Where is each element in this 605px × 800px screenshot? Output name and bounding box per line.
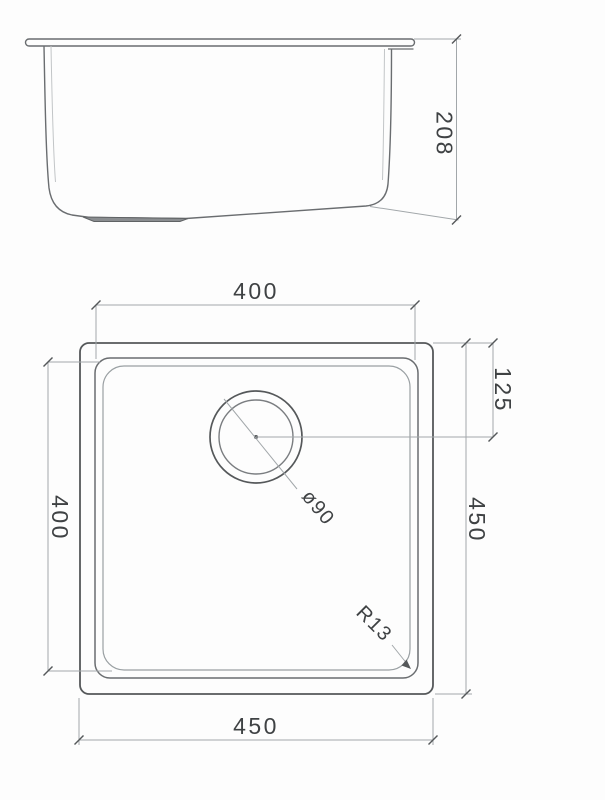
- plan-view: ø90 400 400 450: [44, 278, 517, 745]
- bowl-length-label: 400: [47, 495, 73, 541]
- sink-drawing-canvas: 208 ø90 400: [0, 0, 605, 800]
- drain-diameter-label: ø90: [297, 486, 339, 530]
- bowl-width-label: 400: [233, 278, 279, 304]
- corner-radius-arrowhead: [402, 660, 412, 670]
- corner-radius-label: R13: [352, 602, 397, 647]
- depth-extension-bottom: [370, 207, 459, 221]
- depth-dimension-label: 208: [432, 111, 458, 157]
- side-view-bowl-outline: [44, 46, 392, 219]
- side-view-inner-wall-left: [51, 46, 56, 182]
- overall-length-label: 450: [464, 497, 490, 543]
- drain-diameter-line: [224, 399, 297, 489]
- side-view-rim: [26, 39, 415, 46]
- side-view: 208: [26, 35, 462, 225]
- technical-drawing-sheet: 208 ø90 400: [0, 0, 605, 800]
- side-view-inner-wall-right: [383, 49, 385, 180]
- overall-width-label: 450: [233, 713, 279, 739]
- drain-offset-label: 125: [490, 367, 516, 413]
